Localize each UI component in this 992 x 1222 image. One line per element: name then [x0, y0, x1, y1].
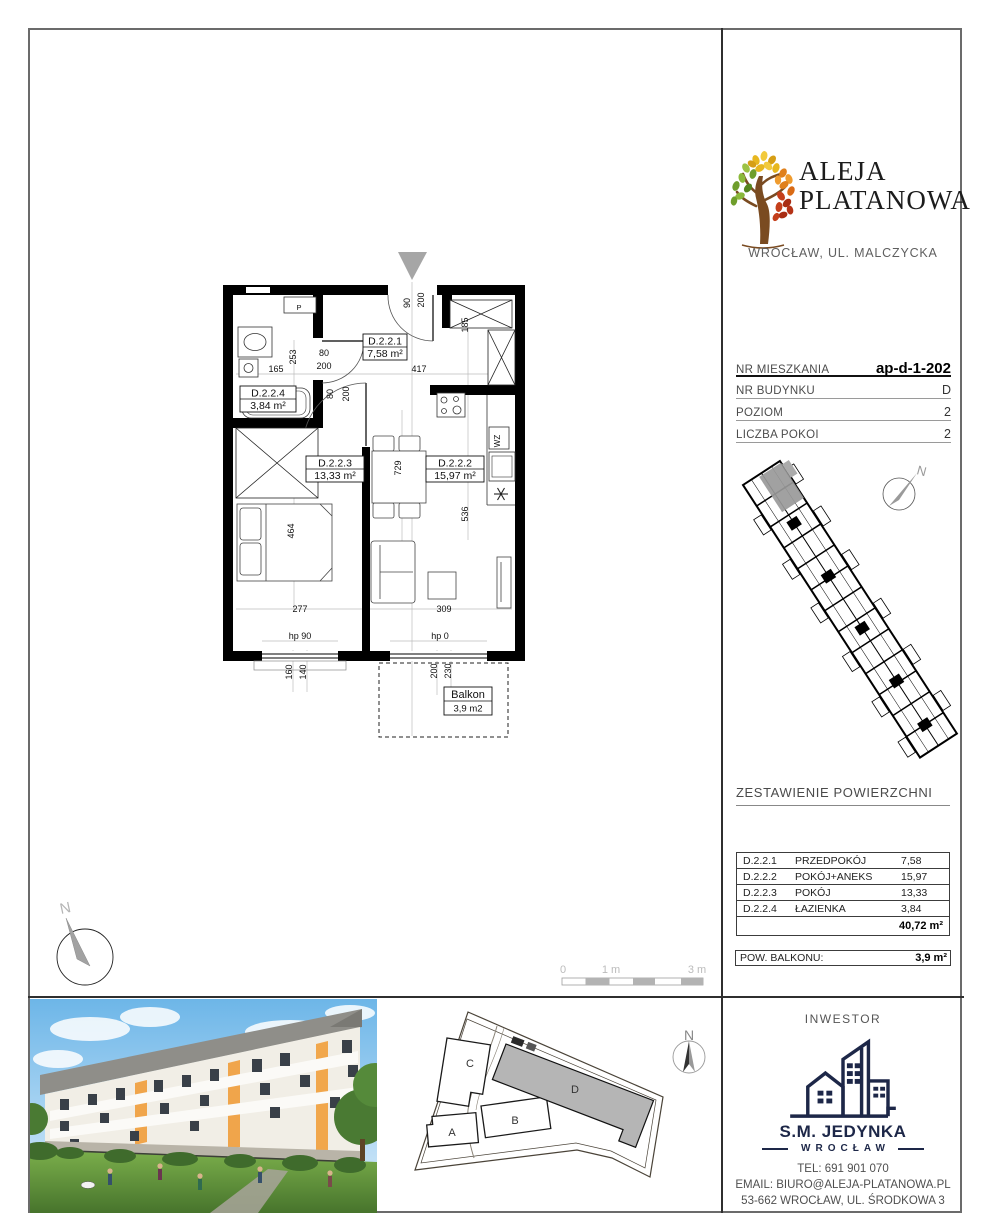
- project-title-line1: ALEJA: [799, 158, 971, 185]
- investor-name: S.M. JEDYNKA: [722, 1122, 964, 1142]
- investor-logo-icon: [786, 1032, 900, 1122]
- building-c: [437, 1038, 490, 1108]
- room-label-bedroom: D.2.2.3 13,33 m²: [306, 456, 364, 482]
- project-location: WROCŁAW, UL. MALCZYCKA: [722, 246, 964, 260]
- svg-text:200: 200: [341, 386, 351, 401]
- svg-text:3,84 m²: 3,84 m²: [250, 400, 286, 412]
- svg-text:13,33 m²: 13,33 m²: [314, 470, 356, 482]
- room-label-hall: D.2.2.1 7,58 m²: [363, 334, 407, 360]
- building-d-label: D: [571, 1084, 579, 1096]
- svg-text:D.2.2.4: D.2.2.4: [251, 388, 285, 400]
- sink-icon: [489, 452, 515, 481]
- level-value: 2: [944, 405, 951, 419]
- building-a-label: A: [448, 1127, 456, 1139]
- tree-logo-icon: [726, 148, 800, 252]
- dining-set-icon: [372, 436, 426, 518]
- svg-text:80: 80: [325, 389, 335, 399]
- svg-text:140: 140: [298, 664, 308, 679]
- svg-text:80: 80: [319, 348, 329, 358]
- floor-plan-sheet: D.2.2.1 7,58 m² D.2.2.4 3,84 m² D.2.2.3 …: [0, 0, 992, 1222]
- investor-city: WROCŁAW: [796, 1143, 890, 1154]
- wz-label: WZ: [493, 435, 502, 448]
- site-plan: C A B D N: [385, 997, 722, 1215]
- living-furniture: [371, 541, 511, 608]
- svg-text:90: 90: [402, 298, 412, 308]
- areas-summary-table: D.2.2.1 PRZEDPOKÓJ 7,58 D.2.2.2 POKÓJ+AN…: [736, 852, 950, 936]
- svg-text:160: 160: [284, 664, 294, 679]
- svg-text:D.2.2.1: D.2.2.1: [368, 336, 402, 348]
- svg-text:185: 185: [460, 317, 470, 332]
- unit-info-row-apartment: NR MIESZKANIA ap-d-1-202: [736, 354, 951, 377]
- north-letter: N: [58, 899, 72, 918]
- investor-title: INWESTOR: [722, 1012, 964, 1026]
- svg-text:200: 200: [316, 361, 331, 371]
- svg-text:165: 165: [268, 364, 283, 374]
- investor-phone: TEL: 691 901 070: [722, 1163, 964, 1175]
- balcony-window: [390, 651, 487, 661]
- washbasin-icon: [238, 327, 272, 357]
- balcony-area-value: 3,9 m²: [915, 952, 950, 964]
- overview-north-compass-icon: N: [883, 462, 928, 510]
- washer-label: P: [296, 303, 301, 312]
- project-title-line2: PLATANOWA: [799, 187, 971, 214]
- building-c-label: C: [466, 1058, 474, 1070]
- table-row: D.2.2.4 ŁAZIENKA 3,84: [737, 901, 949, 917]
- balcony-area-label: POW. BALKONU:: [736, 952, 823, 964]
- balcony-area-row: POW. BALKONU: 3,9 m²: [735, 950, 951, 966]
- coffee-table-icon: [428, 572, 456, 599]
- building-number-label: NR BUDYNKU: [736, 385, 815, 397]
- site-north-compass-icon: N: [673, 1027, 705, 1073]
- building-d-footprint: [735, 456, 963, 763]
- unit-info-row-rooms: LICZBA POKOI 2: [736, 421, 951, 443]
- level-label: POZIOM: [736, 407, 783, 419]
- left-dash: [762, 1148, 788, 1150]
- svg-text:309: 309: [436, 604, 451, 614]
- svg-text:3 m: 3 m: [688, 964, 706, 976]
- room-label-living: D.2.2.2 15,97 m²: [426, 456, 484, 482]
- svg-text:464: 464: [286, 523, 296, 538]
- svg-text:536: 536: [460, 506, 470, 521]
- scale-bar: 0 1 m 3 m: [560, 964, 706, 985]
- table-row: D.2.2.3 POKÓJ 13,33: [737, 885, 949, 901]
- table-row: D.2.2.2 POKÓJ+ANEKS 15,97: [737, 869, 949, 885]
- room-label-bath: D.2.2.4 3,84 m²: [240, 386, 296, 412]
- svg-text:1 m: 1 m: [602, 964, 620, 976]
- svg-text:729: 729: [393, 460, 403, 475]
- entrance-arrow-icon: [398, 252, 427, 280]
- right-dash: [898, 1148, 924, 1150]
- unit-info-row-building: NR BUDYNKU D: [736, 377, 951, 399]
- north-compass-icon: N: [57, 899, 113, 985]
- svg-text:hp 90: hp 90: [289, 631, 312, 641]
- unit-number-label: NR MIESZKANIA: [736, 364, 829, 376]
- svg-text:D.2.2.3: D.2.2.3: [318, 458, 352, 470]
- building-photo: [30, 999, 377, 1213]
- fridge-icon: [494, 488, 508, 500]
- building-overview-plan: N: [723, 450, 963, 780]
- bed-icon: [237, 504, 332, 581]
- svg-text:200: 200: [416, 292, 426, 307]
- svg-text:277: 277: [292, 604, 307, 614]
- project-title: ALEJA PLATANOWA: [799, 158, 971, 214]
- tv-cabinet-icon: [497, 557, 511, 608]
- svg-text:417: 417: [411, 364, 426, 374]
- investor-address: 53-662 WROCŁAW, UL. ŚRODKOWA 3: [722, 1195, 964, 1207]
- svg-text:15,97 m²: 15,97 m²: [434, 470, 476, 482]
- kitchen-fixtures: [437, 393, 515, 505]
- svg-text:7,58 m²: 7,58 m²: [367, 348, 403, 360]
- svg-text:0: 0: [560, 964, 566, 976]
- floor-plan-drawing: D.2.2.1 7,58 m² D.2.2.4 3,84 m² D.2.2.3 …: [28, 28, 722, 996]
- svg-text:Balkon: Balkon: [451, 689, 485, 701]
- unit-info-table: NR MIESZKANIA ap-d-1-202 NR BUDYNKU D PO…: [736, 354, 951, 443]
- areas-summary-title: ZESTAWIENIE POWIERZCHNI: [736, 785, 950, 806]
- table-row: D.2.2.1 PRZEDPOKÓJ 7,58: [737, 853, 949, 869]
- svg-text:253: 253: [288, 349, 298, 364]
- site-north-letter: N: [684, 1027, 694, 1043]
- unit-number-value: ap-d-1-202: [876, 360, 951, 377]
- svg-text:230: 230: [443, 663, 453, 678]
- svg-text:hp 0: hp 0: [431, 631, 449, 641]
- building-b-label: B: [511, 1115, 518, 1127]
- svg-text:3,9 m2: 3,9 m2: [453, 704, 482, 715]
- investor-city-row: WROCŁAW: [722, 1143, 964, 1154]
- rooms-count-value: 2: [944, 427, 951, 441]
- unit-info-row-level: POZIOM 2: [736, 399, 951, 421]
- svg-text:200: 200: [429, 663, 439, 678]
- svg-text:D.2.2.2: D.2.2.2: [438, 458, 472, 470]
- total-area-value: 40,72 m²: [737, 917, 949, 935]
- toilet-icon: [239, 359, 258, 377]
- rooms-count-label: LICZBA POKOI: [736, 429, 819, 441]
- building-number-value: D: [942, 383, 951, 397]
- balcony-label: Balkon 3,9 m2: [444, 687, 492, 715]
- stove-icon: [437, 393, 465, 417]
- overview-north-letter: N: [915, 462, 928, 479]
- investor-email: EMAIL: BIURO@ALEJA-PLATANOWA.PL: [722, 1179, 964, 1191]
- kitchen-closet-icon: [488, 330, 515, 385]
